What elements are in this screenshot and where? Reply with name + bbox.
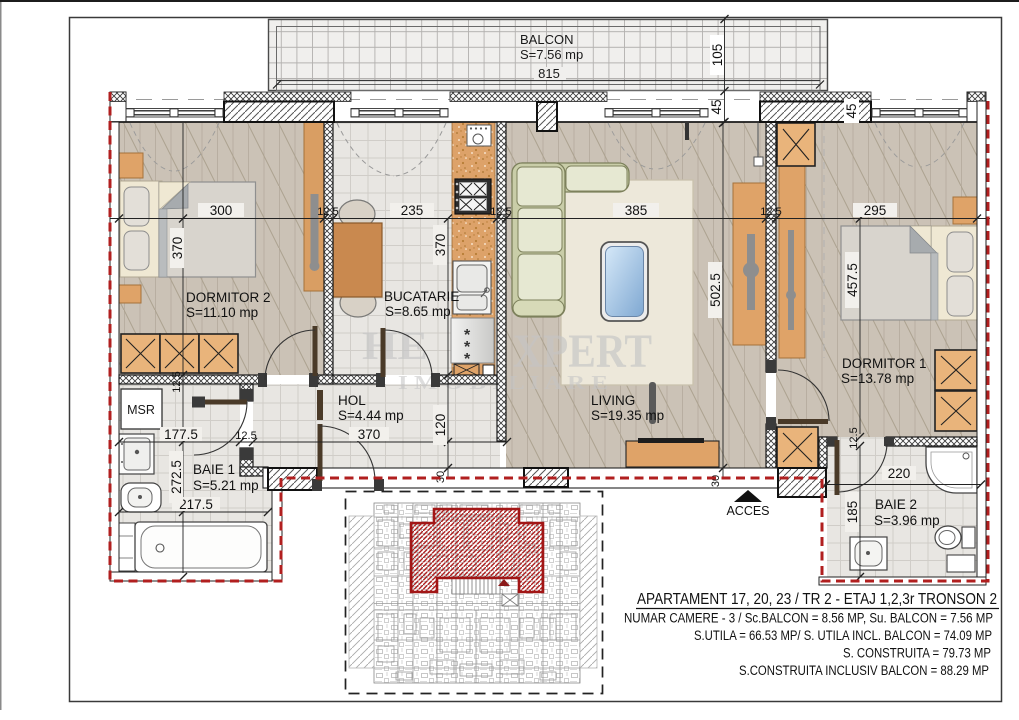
svg-text:S=13.78 mp: S=13.78 mp bbox=[841, 371, 914, 386]
svg-text:235: 235 bbox=[401, 203, 424, 218]
svg-text:12.5: 12.5 bbox=[490, 206, 511, 218]
svg-text:185: 185 bbox=[845, 501, 860, 524]
svg-text:12.5: 12.5 bbox=[171, 371, 183, 392]
svg-text:120: 120 bbox=[433, 414, 448, 437]
svg-text:MSR: MSR bbox=[127, 403, 155, 417]
svg-text:XPERT: XPERT bbox=[513, 325, 652, 378]
svg-text:385: 385 bbox=[625, 203, 648, 218]
svg-text:S.CONSTRUITA INCLUSIV BALCON =: S.CONSTRUITA INCLUSIV BALCON = 88.29 MP bbox=[739, 663, 989, 678]
svg-text:APARTAMENT 17, 20, 23 / TR 2 -: APARTAMENT 17, 20, 23 / TR 2 - ETAJ 1,2,… bbox=[637, 591, 997, 608]
svg-text:S.UTILA = 66.53 MP/ S. UTILA I: S.UTILA = 66.53 MP/ S. UTILA INCL. BALCO… bbox=[694, 628, 992, 643]
svg-text:ACCES: ACCES bbox=[726, 504, 769, 518]
svg-text:HE: HE bbox=[362, 323, 428, 368]
svg-text:S=3.96 mp: S=3.96 mp bbox=[874, 513, 940, 528]
svg-text:220: 220 bbox=[888, 466, 911, 481]
svg-text:S=8.65 mp: S=8.65 mp bbox=[385, 304, 451, 319]
svg-text:105: 105 bbox=[710, 44, 725, 67]
svg-text:45: 45 bbox=[844, 103, 859, 118]
svg-text:BAIE 2: BAIE 2 bbox=[875, 497, 917, 512]
svg-text:45: 45 bbox=[709, 99, 724, 114]
svg-text:502.5: 502.5 bbox=[708, 273, 723, 307]
svg-text:370: 370 bbox=[358, 427, 381, 442]
svg-text:12.5: 12.5 bbox=[760, 206, 781, 218]
svg-text:370: 370 bbox=[433, 234, 448, 257]
svg-text:457.5: 457.5 bbox=[845, 263, 860, 297]
svg-text:217.5: 217.5 bbox=[179, 497, 213, 512]
svg-text:S. CONSTRUITA = 79.73 MP: S. CONSTRUITA = 79.73 MP bbox=[843, 646, 991, 661]
svg-text:DORMITOR 1: DORMITOR 1 bbox=[842, 356, 927, 371]
svg-text:BAIE 1: BAIE 1 bbox=[193, 462, 235, 477]
svg-text:DORMITOR 2: DORMITOR 2 bbox=[186, 290, 271, 305]
svg-text:12.5: 12.5 bbox=[848, 427, 860, 448]
svg-text:HOL: HOL bbox=[338, 393, 366, 408]
svg-text:370: 370 bbox=[170, 237, 185, 260]
svg-text:S=4.44 mp: S=4.44 mp bbox=[338, 408, 404, 423]
svg-text:S=11.10 mp: S=11.10 mp bbox=[186, 305, 258, 320]
svg-text:S=5.21 mp: S=5.21 mp bbox=[193, 478, 259, 493]
svg-text:LIVING: LIVING bbox=[591, 393, 635, 408]
svg-text:12.5: 12.5 bbox=[317, 206, 338, 218]
svg-text:NUMAR CAMERE - 3 / Sc.BALCON =: NUMAR CAMERE - 3 / Sc.BALCON = 8.56 MP, … bbox=[624, 611, 993, 626]
svg-text:BALCON: BALCON bbox=[520, 32, 573, 47]
svg-text:177.5: 177.5 bbox=[164, 427, 198, 442]
svg-text:295: 295 bbox=[864, 203, 887, 218]
svg-text:815: 815 bbox=[538, 66, 560, 81]
svg-text:272.5: 272.5 bbox=[169, 460, 184, 494]
svg-text:S=19.35 mp: S=19.35 mp bbox=[591, 408, 664, 423]
svg-text:S=7.56 mp: S=7.56 mp bbox=[520, 47, 583, 62]
svg-text:BUCATARIE: BUCATARIE bbox=[384, 289, 459, 304]
svg-text:300: 300 bbox=[210, 203, 233, 218]
svg-text:12.5: 12.5 bbox=[235, 430, 256, 442]
